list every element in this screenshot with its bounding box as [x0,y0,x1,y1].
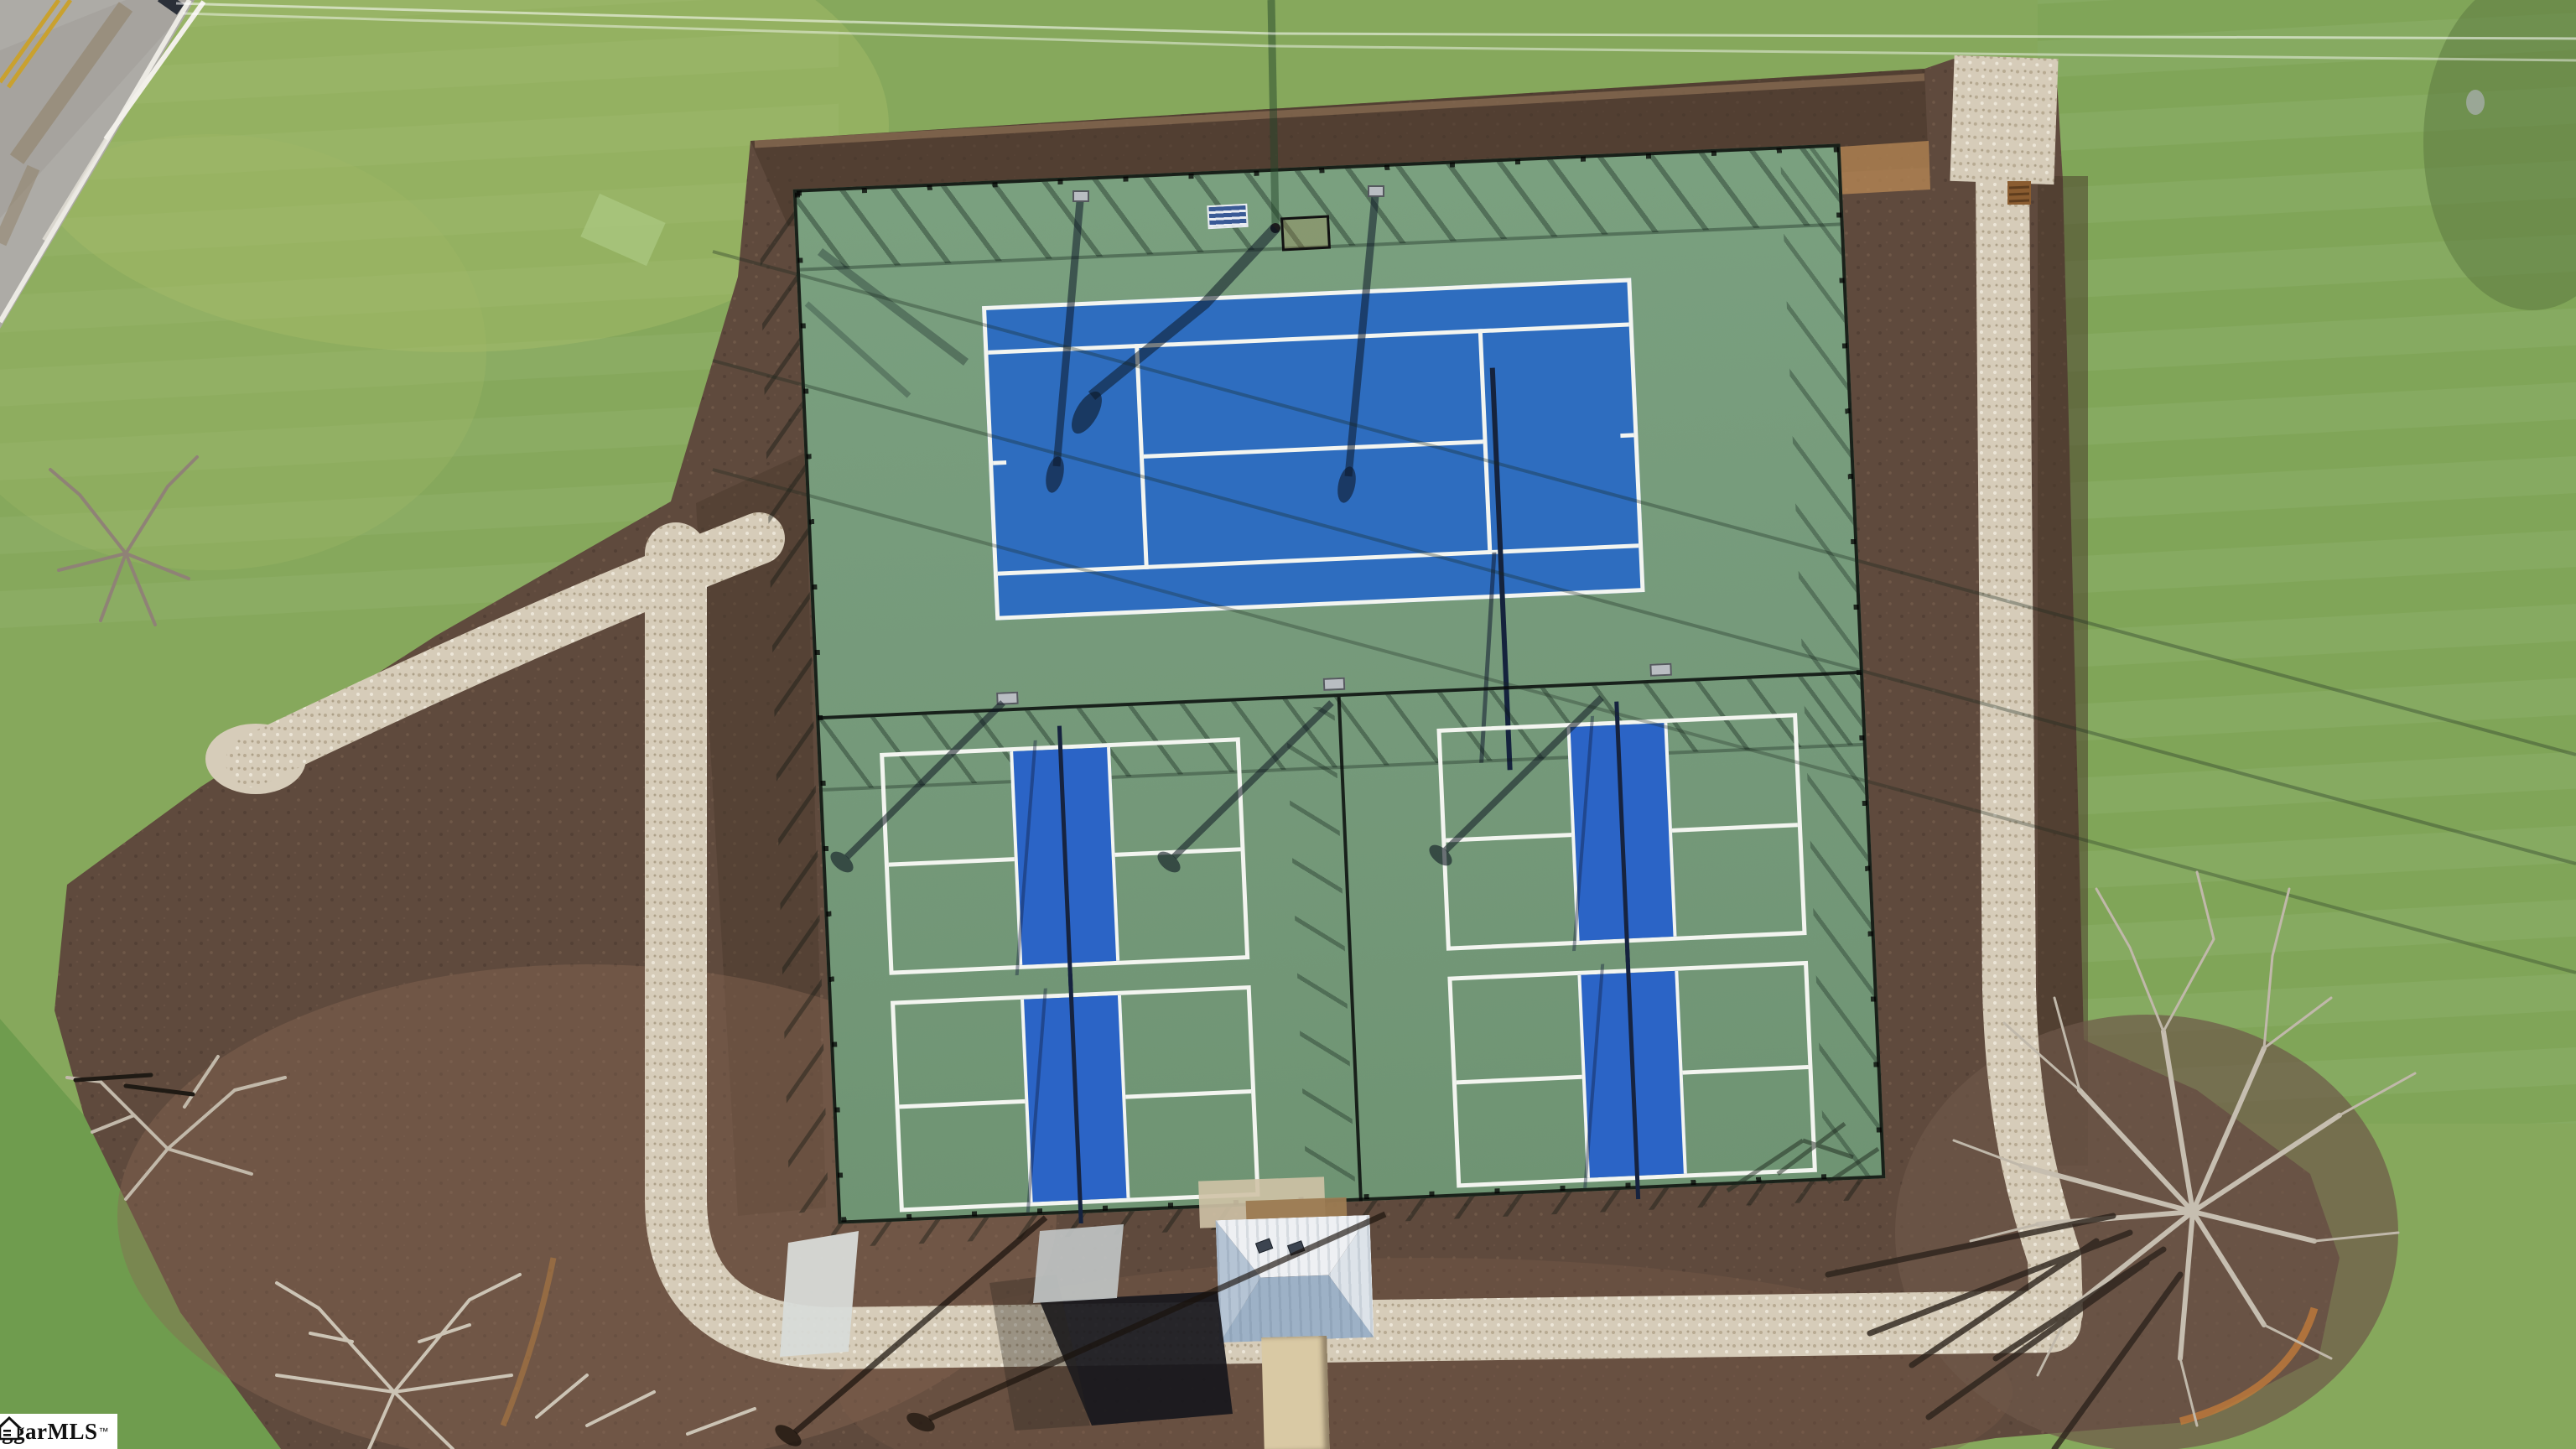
bare-tree-left [50,457,197,625]
tennis-pole-shadows [1043,186,1384,505]
wire-shadows [713,252,2576,973]
gray-pad [1033,1224,1124,1303]
pole-shadow [1092,228,1275,396]
branch-shadow-on-court [1727,1124,1878,1191]
watermark: ggarMLS™ [0,1414,117,1449]
power-lines [176,3,2576,60]
light-fixture [1073,191,1088,201]
corner-fence-shadow [820,252,966,362]
gray-pad [780,1231,859,1357]
bare-tree-bottom-center [277,1275,755,1449]
pickleball-pole-shadows [827,698,1602,876]
light-fixture [1368,186,1384,196]
aerial-photo: ggarMLS™ [0,0,2576,1449]
bare-tree-right [1828,872,2415,1449]
watermark-trademark: ™ [99,1426,109,1437]
tree-shadow [1828,1216,2180,1449]
bare-tree-bottom-left [67,1057,285,1199]
shadow-layer [0,0,2576,1449]
house-icon [0,1414,23,1442]
